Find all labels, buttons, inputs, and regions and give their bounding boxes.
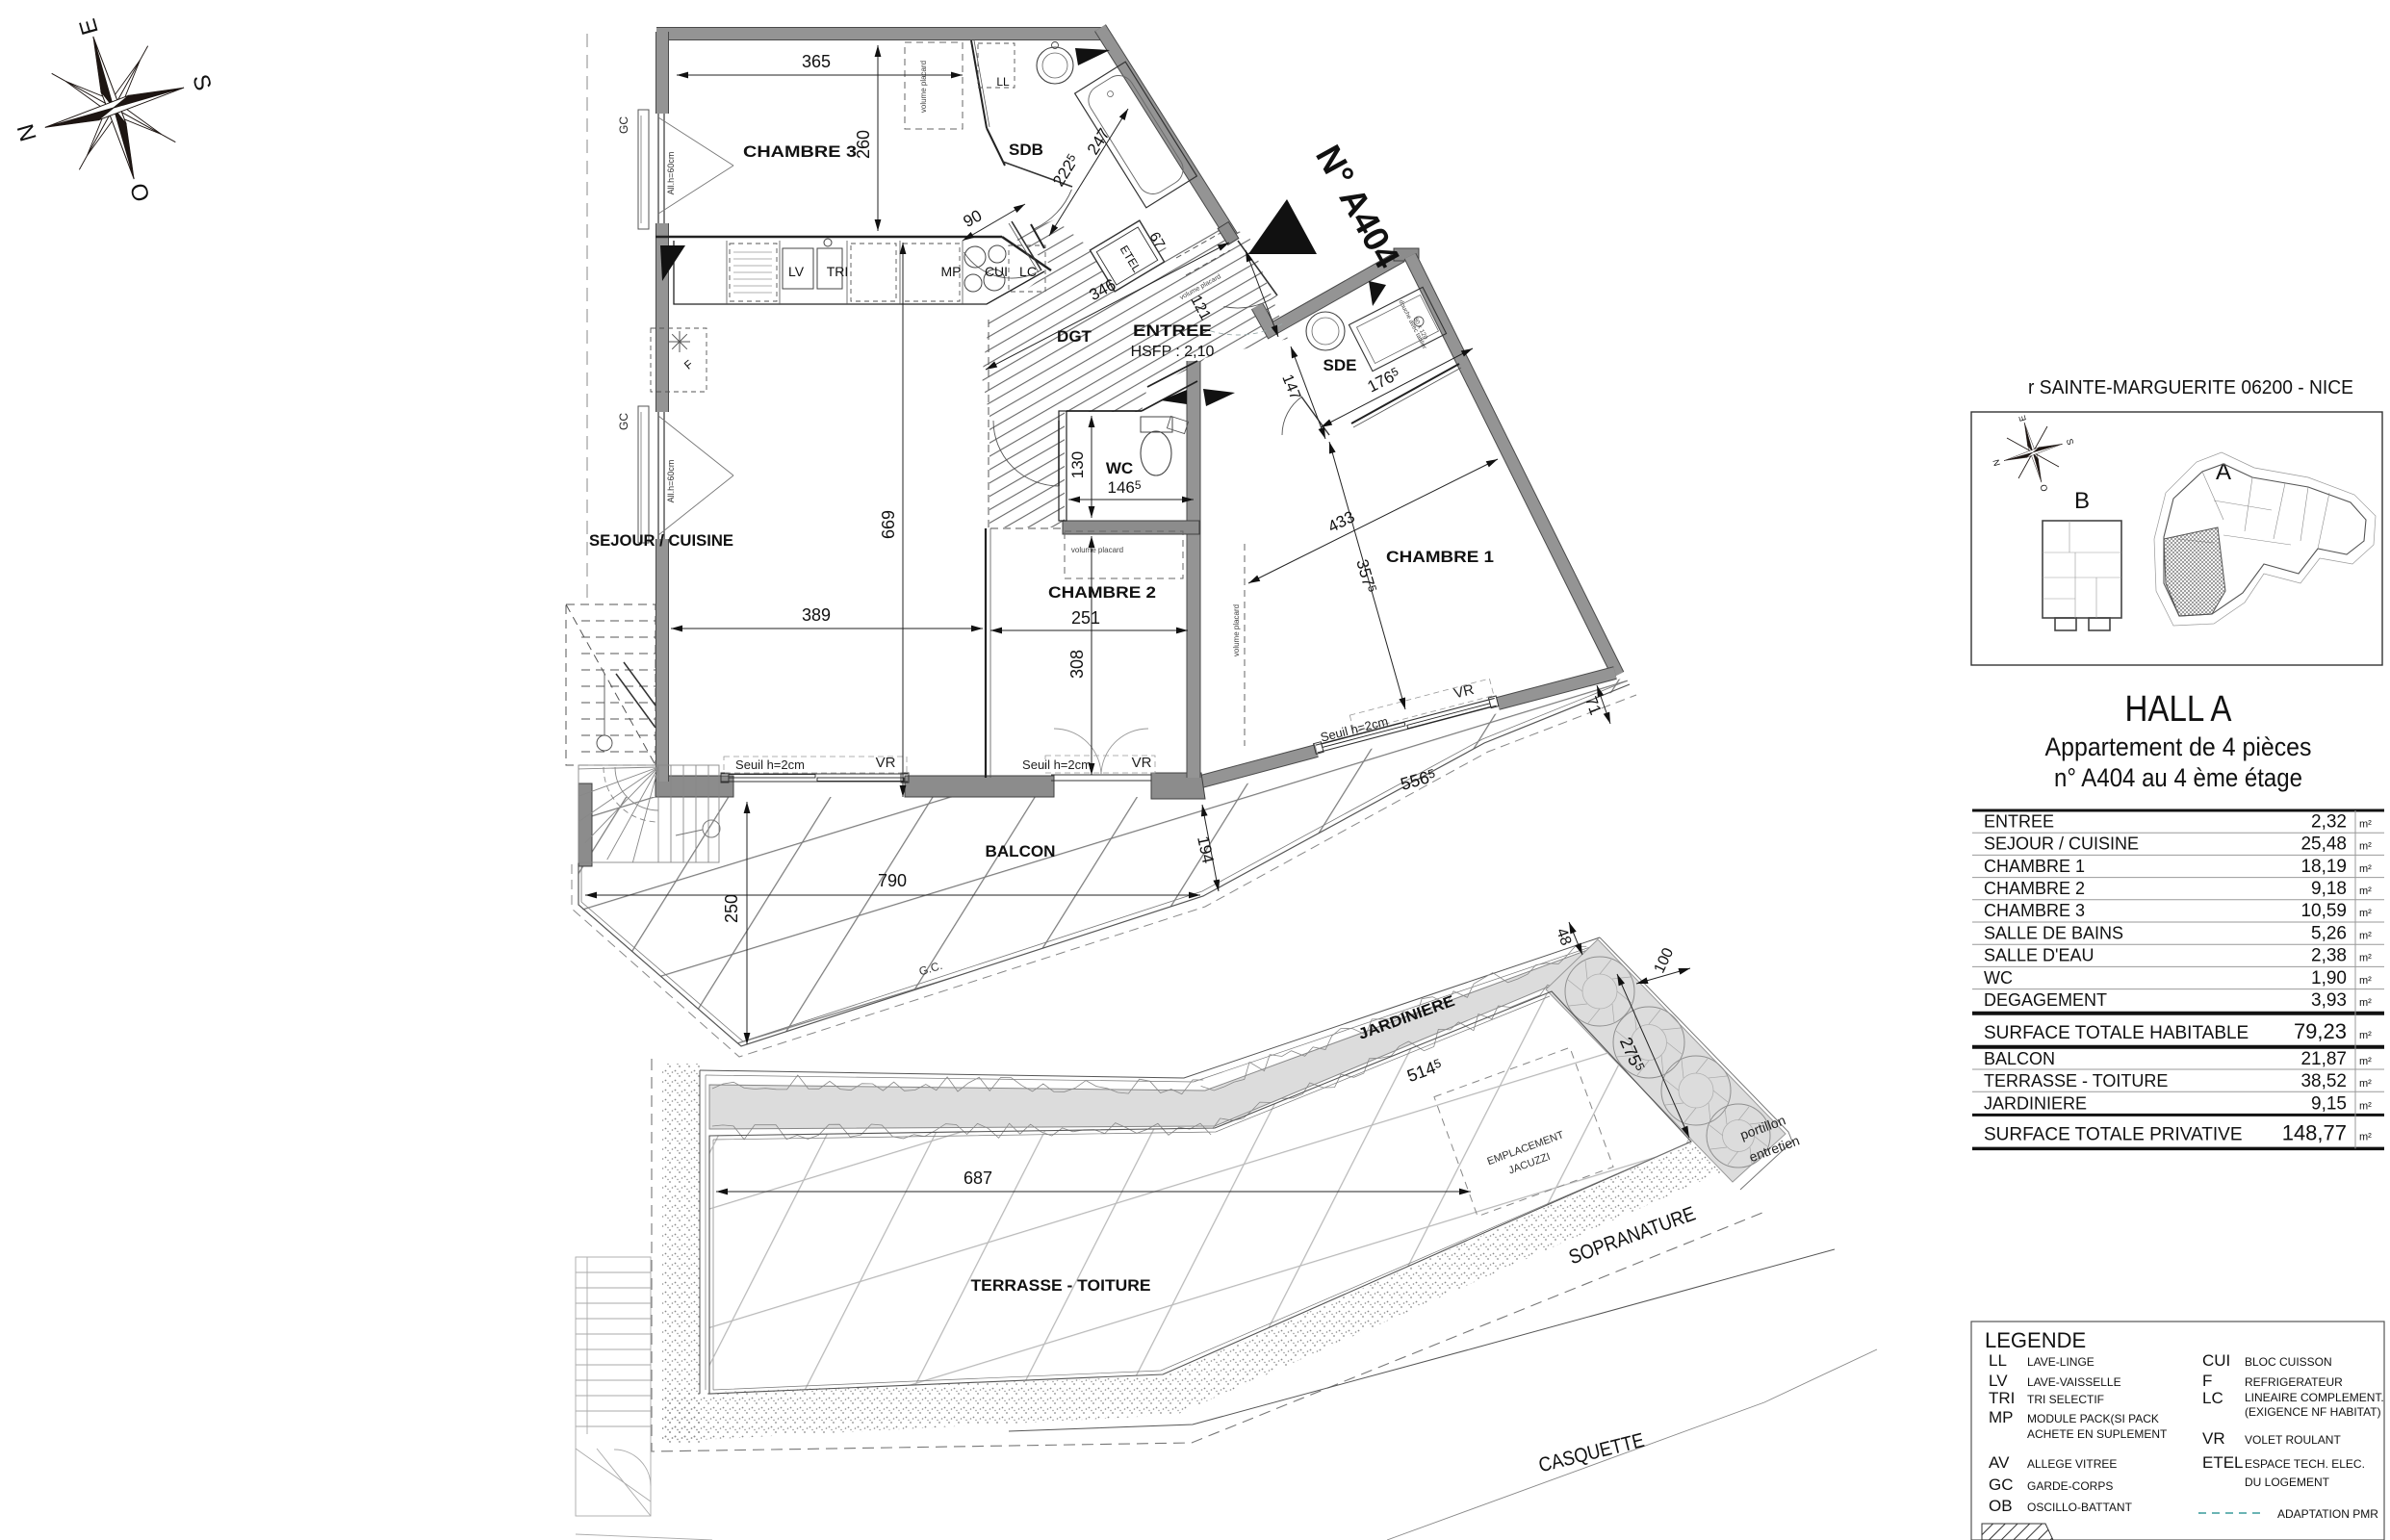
svg-text:m²: m² [2359,930,2372,941]
svg-text:CUI: CUI [985,264,1008,279]
svg-text:VR: VR [876,755,896,771]
svg-text:LV: LV [788,264,805,279]
svg-text:VR: VR [1132,755,1152,771]
svg-text:CHAMBRE 2: CHAMBRE 2 [1984,879,2085,898]
svg-text:CUI: CUI [2202,1351,2230,1370]
svg-text:m²: m² [2359,818,2372,830]
svg-text:WC: WC [1106,459,1133,477]
svg-text:GC: GC [617,413,630,430]
svg-text:volume placard: volume placard [1232,604,1241,656]
svg-text:n° A404 au 4 ème étage: n° A404 au 4 ème étage [2054,763,2302,792]
svg-text:m²: m² [2359,1100,2372,1112]
svg-text:148,77: 148,77 [2282,1120,2347,1144]
svg-text:BALCON: BALCON [986,842,1056,860]
svg-text:1,90: 1,90 [2311,968,2347,988]
svg-text:HALL A: HALL A [2125,689,2233,730]
svg-text:CHAMBRE 1: CHAMBRE 1 [1386,548,1494,566]
svg-text:CHAMBRE 1: CHAMBRE 1 [1984,857,2085,876]
svg-text:ESPACE TECH. ELEC.: ESPACE TECH. ELEC. [2245,1457,2365,1471]
svg-text:GARDE-CORPS: GARDE-CORPS [2027,1479,2113,1493]
svg-text:TERRASSE - TOITURE: TERRASSE - TOITURE [1984,1071,2168,1091]
svg-text:SDB: SDB [1009,141,1043,159]
svg-text:m²: m² [2359,1056,2372,1067]
svg-text:LL: LL [996,75,1010,89]
svg-text:TRI: TRI [1989,1389,2015,1407]
svg-text:A: A [2216,459,2231,485]
svg-text:All.h=60cm: All.h=60cm [666,460,676,503]
svg-text:251: 251 [1071,608,1100,628]
svg-text:F: F [2202,1372,2212,1390]
svg-text:VR: VR [2202,1429,2225,1448]
svg-text:2,38: 2,38 [2311,946,2347,966]
svg-text:TRI: TRI [827,264,849,279]
svg-text:ALLEGE VITREE: ALLEGE VITREE [2027,1457,2117,1471]
svg-text:MODULE PACK(SI PACK: MODULE PACK(SI PACK [2027,1412,2159,1425]
svg-text:365: 365 [802,52,831,71]
svg-text:9,18: 9,18 [2311,879,2347,899]
svg-text:MP: MP [1989,1408,2014,1426]
svg-text:LL: LL [1989,1351,2007,1370]
svg-text:Appartement de 4 pièces: Appartement de 4 pièces [2045,732,2312,761]
svg-text:m²: m² [2359,863,2372,875]
svg-text:GC: GC [617,116,630,134]
svg-text:25,48: 25,48 [2300,834,2347,855]
svg-text:790: 790 [878,871,907,890]
svg-text:10,59: 10,59 [2300,901,2347,921]
svg-text:2,32: 2,32 [2311,811,2347,832]
svg-text:308: 308 [1067,650,1087,679]
svg-text:volume placard: volume placard [919,61,928,113]
svg-text:LEGENDE: LEGENDE [1985,1328,2086,1352]
svg-text:WC: WC [1984,968,2013,988]
svg-text:LV: LV [1989,1372,2008,1390]
svg-text:HSFP : 2,10: HSFP : 2,10 [1131,344,1215,360]
svg-text:GC: GC [1989,1476,2014,1494]
svg-text:VOLET ROULANT: VOLET ROULANT [2245,1433,2341,1447]
svg-text:OB: OB [1989,1497,2013,1515]
svg-text:9,15: 9,15 [2311,1093,2347,1114]
svg-text:260: 260 [854,130,873,159]
svg-text:BALCON: BALCON [1984,1049,2055,1068]
svg-text:Seuil h=2cm: Seuil h=2cm [735,757,805,772]
svg-text:SALLE DE BAINS: SALLE DE BAINS [1984,923,2123,942]
svg-text:SEJOUR / CUISINE: SEJOUR / CUISINE [589,531,733,550]
svg-text:SALLE D'EAU: SALLE D'EAU [1984,946,2094,965]
svg-text:ENTREE: ENTREE [1984,811,2054,831]
svg-text:m²: m² [2359,1131,2372,1142]
svg-text:SURFACE TOTALE HABITABLE: SURFACE TOTALE HABITABLE [1984,1023,2249,1043]
svg-text:CHAMBRE 3: CHAMBRE 3 [743,142,857,161]
svg-text:18,19: 18,19 [2300,857,2347,877]
svg-text:5,26: 5,26 [2311,923,2347,943]
svg-text:ACHETE EN SUPLEMENT: ACHETE EN SUPLEMENT [2027,1427,2168,1441]
svg-text:TRI SELECTIF: TRI SELECTIF [2027,1393,2104,1406]
svg-text:B: B [2074,488,2090,514]
svg-text:REFRIGERATEUR: REFRIGERATEUR [2245,1375,2343,1389]
svg-text:m²: m² [2359,997,2372,1009]
svg-text:AV: AV [1989,1453,2010,1472]
svg-text:m²: m² [2359,975,2372,987]
svg-text:m²: m² [2359,953,2372,964]
svg-text:687: 687 [964,1168,992,1188]
svg-text:TERRASSE - TOITURE: TERRASSE - TOITURE [971,1276,1151,1295]
svg-text:250: 250 [722,894,741,923]
svg-text:LAVE-VAISSELLE: LAVE-VAISSELLE [2027,1375,2121,1389]
svg-text:r SAINTE-MARGUERITE 06200 - NI: r SAINTE-MARGUERITE 06200 - NICE [2028,377,2353,398]
svg-text:DEGAGEMENT: DEGAGEMENT [1984,990,2107,1010]
svg-text:SDE: SDE [1323,356,1357,374]
svg-text:Seuil h=2cm: Seuil h=2cm [1022,757,1092,772]
svg-text:LAVE-LINGE: LAVE-LINGE [2027,1355,2094,1369]
svg-text:ENTREE: ENTREE [1133,321,1212,340]
svg-text:21,87: 21,87 [2300,1049,2347,1069]
svg-text:m²: m² [2359,908,2372,919]
svg-text:LC: LC [1019,264,1037,279]
svg-text:(EXIGENCE NF HABITAT): (EXIGENCE NF HABITAT) [2245,1405,2381,1419]
svg-text:BLOC CUISSON: BLOC CUISSON [2245,1355,2332,1369]
svg-text:OSCILLO-BATTANT: OSCILLO-BATTANT [2027,1501,2133,1514]
svg-text:ETEL: ETEL [2202,1453,2244,1472]
svg-text:m²: m² [2359,1078,2372,1090]
svg-text:DU LOGEMENT: DU LOGEMENT [2245,1476,2330,1489]
svg-text:669: 669 [879,510,898,539]
svg-text:79,23: 79,23 [2294,1019,2347,1043]
svg-text:SURFACE TOTALE PRIVATIVE: SURFACE TOTALE PRIVATIVE [1984,1124,2243,1144]
svg-text:MP: MP [941,264,962,279]
svg-text:volume placard: volume placard [1071,546,1123,554]
svg-text:3,93: 3,93 [2311,990,2347,1011]
svg-text:SEJOUR / CUISINE: SEJOUR / CUISINE [1984,834,2139,854]
svg-text:All.h=60cm: All.h=60cm [666,152,676,195]
svg-text:LINEAIRE COMPLEMENT.: LINEAIRE COMPLEMENT. [2245,1391,2384,1404]
svg-text:JARDINIERE: JARDINIERE [1984,1093,2087,1113]
svg-text:130: 130 [1068,451,1087,478]
svg-text:ADAPTATION PMR: ADAPTATION PMR [2277,1507,2378,1521]
svg-text:38,52: 38,52 [2300,1071,2347,1091]
svg-text:CHAMBRE 2: CHAMBRE 2 [1048,583,1156,602]
svg-text:389: 389 [802,605,831,625]
svg-text:CHAMBRE 3: CHAMBRE 3 [1984,901,2085,920]
svg-text:m²: m² [2359,841,2372,853]
svg-text:m²: m² [2359,885,2372,897]
svg-text:LC: LC [2202,1389,2223,1407]
svg-text:m²: m² [2359,1030,2372,1041]
